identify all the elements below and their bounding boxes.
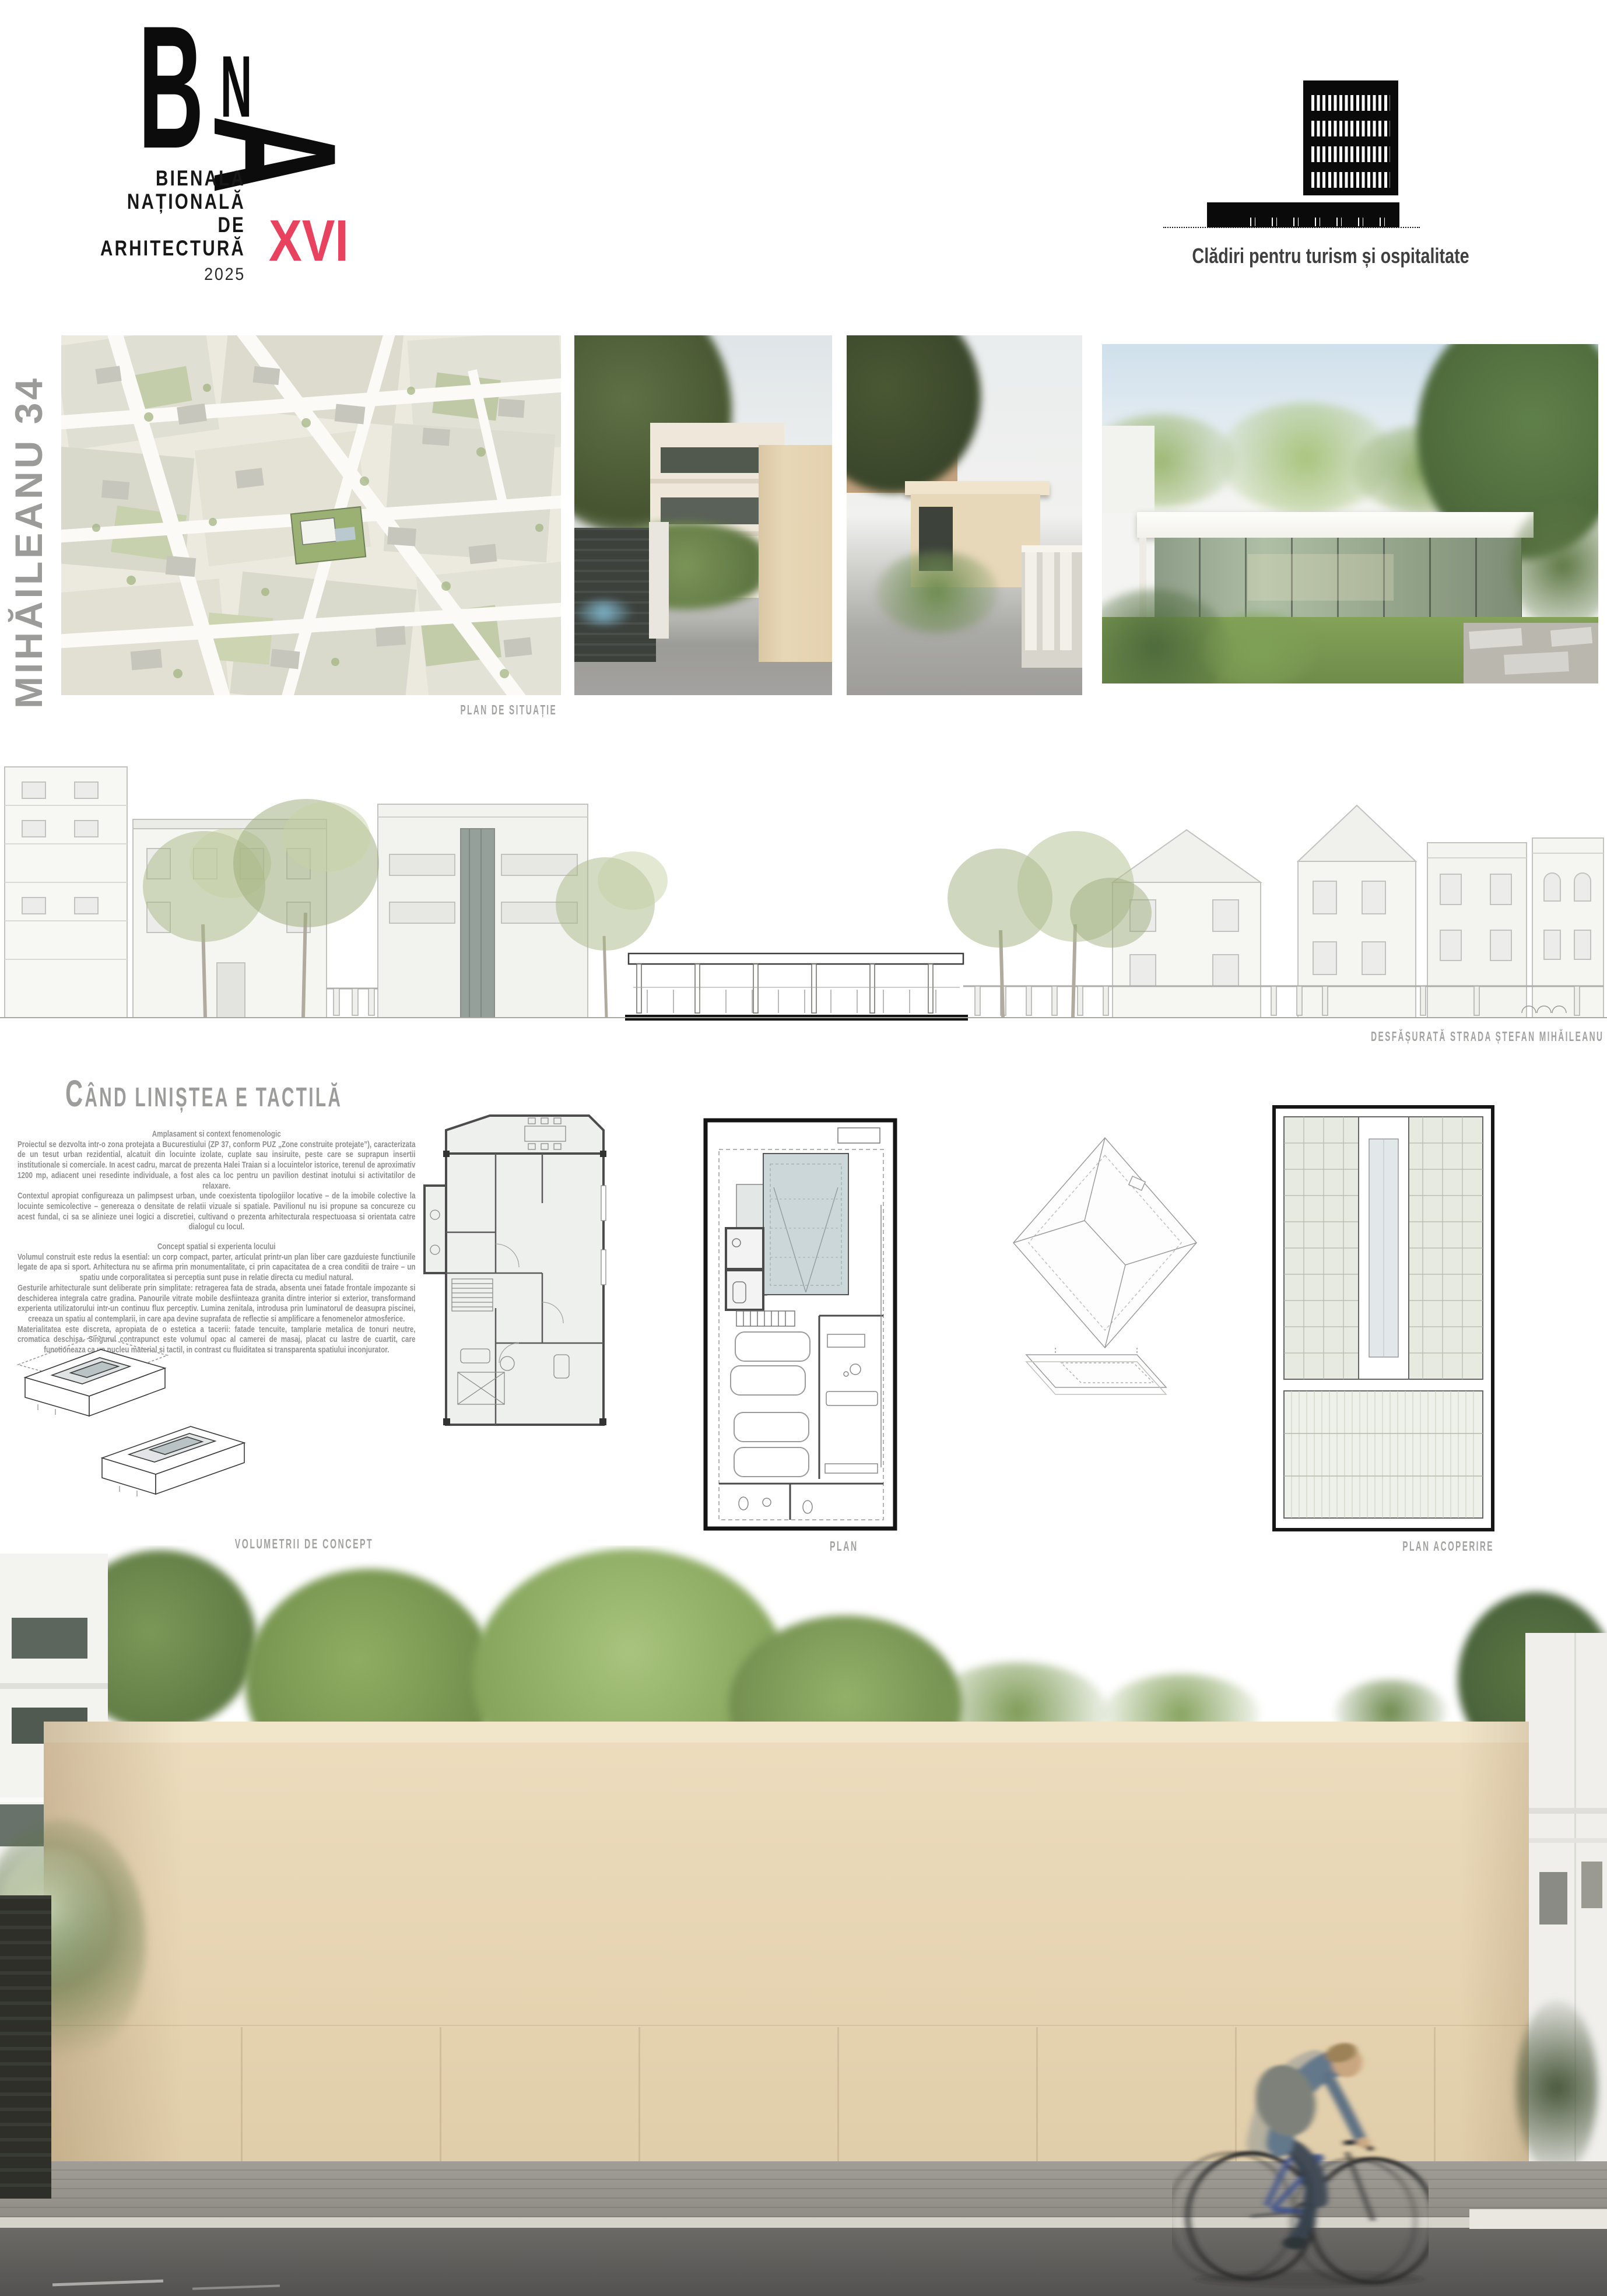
podium-bar-icon [1207, 202, 1399, 227]
roof-plan-drawing [1271, 1104, 1496, 1533]
article-paragraph: Proiectul se dezvolta intr-o zona protej… [17, 1140, 416, 1191]
project-title-vertical: MIHĂILEANU 34 [3, 335, 54, 709]
classical-fence [1022, 545, 1082, 668]
project-site-highlight [291, 507, 366, 564]
logo-line-4: ARHITECTURĂ [100, 236, 245, 261]
competition-board: B N A BIENALA NAȚIONALĂ DE ARHITECTURĂ X… [0, 0, 1607, 2296]
logo-line-1: BIENALA [156, 167, 245, 191]
pavilion-street-wall [759, 445, 832, 662]
window-slits-row [1311, 172, 1390, 188]
parked-car-hint [574, 601, 633, 624]
logo-edition: XVI [269, 208, 349, 273]
foreground-shrub [1201, 612, 1318, 683]
photo-street-facade [0, 1545, 1607, 2296]
logo-year: 2025 [204, 265, 245, 285]
neighbor-house [1102, 426, 1155, 513]
article-heading-1: Amplasament si context fenomenologic [17, 1129, 416, 1140]
shrubs [876, 551, 998, 633]
bna-logo: B N A BIENALA NAȚIONALĂ DE ARHITECTURĂ X… [50, 0, 364, 292]
dark-gate [0, 1895, 51, 2199]
pavilion-plan-drawing [703, 1117, 898, 1532]
article-paragraph: Gesturile arhitecturale sunt deliberate … [17, 1283, 416, 1324]
proposed-pavilion-elevation [625, 954, 968, 1021]
category-label: Clădiri pentru turism și ospitalitate [1157, 244, 1420, 268]
logo-line-2: NAȚIONALĂ [127, 190, 245, 214]
gate-pillar [649, 522, 669, 639]
article-paragraph: Contextul apropiat configureaza un palim… [17, 1191, 416, 1232]
logo-line-3: DE [217, 213, 245, 237]
ground-dotted-line [1163, 227, 1420, 228]
site-plan-caption: PLAN DE SITUAȚIE [382, 702, 557, 718]
article-paragraph: Volumul construit este redus la esential… [17, 1252, 416, 1283]
roof-fascia [1137, 512, 1534, 538]
window-slits-row [1311, 95, 1390, 111]
window-slits-row [1311, 146, 1390, 162]
roof-axonometric-drawing [991, 1104, 1219, 1439]
stone-path [1464, 623, 1598, 683]
cyclist [1172, 1942, 1429, 2292]
hotel-building-icon [1303, 80, 1398, 195]
window-slits-row [1311, 121, 1390, 136]
house-floor-plan-drawing [408, 1098, 653, 1471]
concept-volumetry-drawing [15, 1319, 248, 1535]
elevation-caption: DESFĂȘURATĂ STRADA ȘTEFAN MIHĂILEANU [1195, 1029, 1604, 1044]
photo-garden-pavilion [1102, 344, 1598, 683]
site-plan-drawing [61, 335, 561, 695]
metal-gate [574, 528, 656, 662]
people-figures-icon [1242, 218, 1394, 226]
pool [763, 1154, 848, 1295]
article-heading-2: Concept spatial si experienta locului [17, 1242, 416, 1252]
street-elevation-drawing [0, 749, 1607, 1029]
photo-corner-brick [847, 335, 1082, 695]
canopy-slab [905, 481, 1050, 495]
photo-street-house [574, 335, 832, 695]
hedge [1516, 2000, 1598, 2175]
tree-canopy [847, 335, 981, 493]
painted-curb [1469, 2209, 1607, 2229]
